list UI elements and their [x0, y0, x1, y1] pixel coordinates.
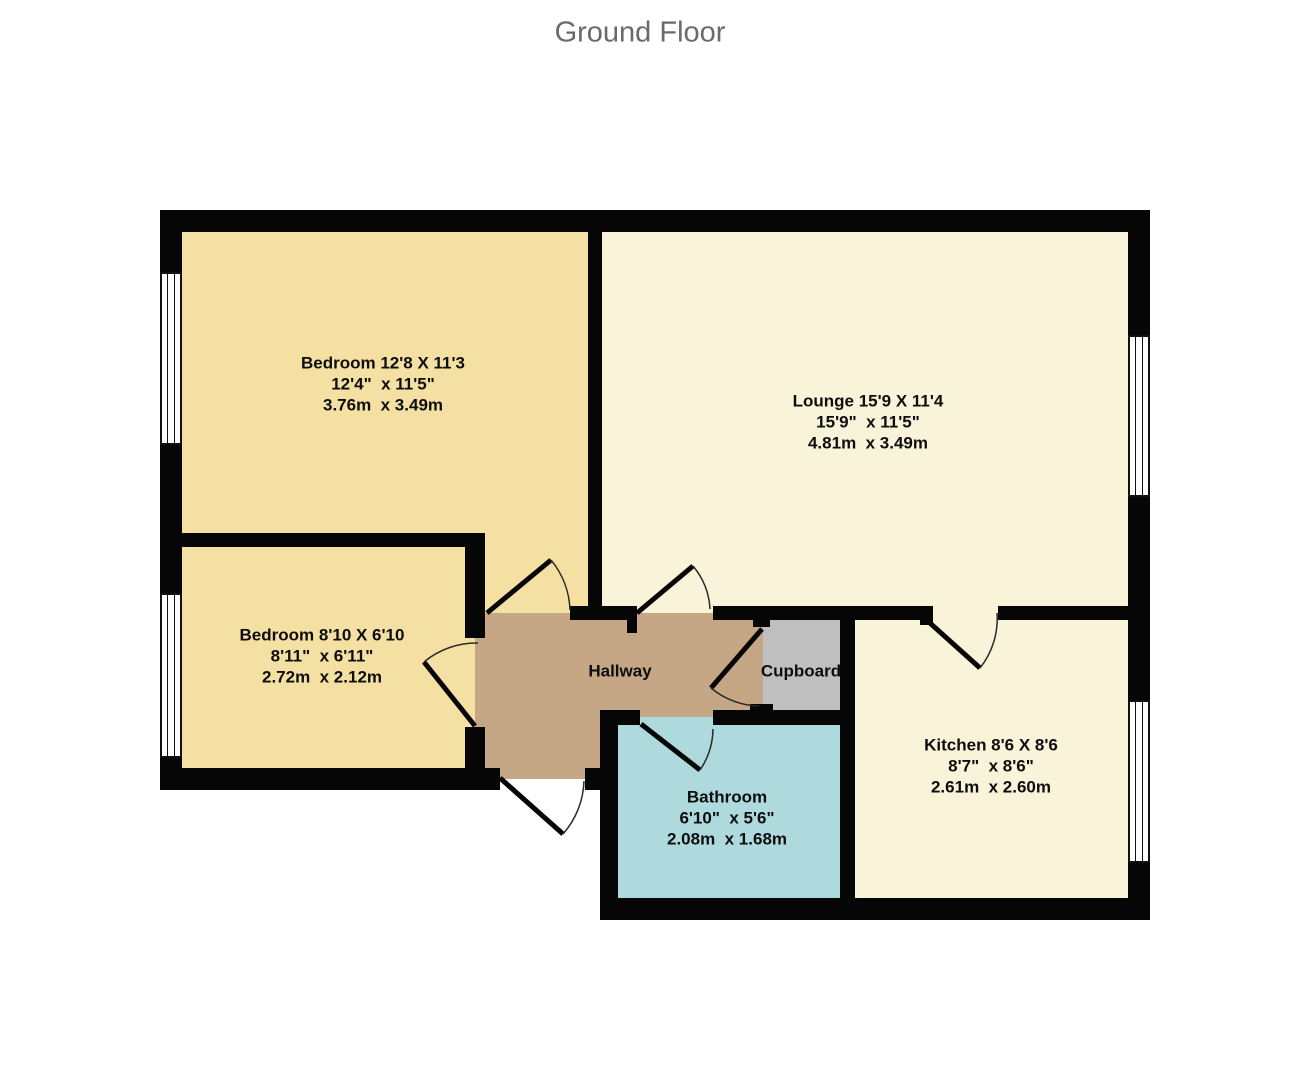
bathroom-door [641, 724, 713, 770]
lounge-window [1128, 335, 1150, 497]
kitchen-door [921, 613, 997, 668]
doors-layer [0, 0, 1308, 1080]
entry-door [500, 778, 584, 834]
kitchen-window [1128, 700, 1150, 863]
bedroom2-door [424, 643, 478, 726]
bedroom2-window [160, 593, 182, 758]
page-title: Ground Floor [555, 17, 726, 50]
lounge-door [637, 566, 710, 613]
bedroom1-window [160, 272, 182, 445]
cupboard-door [711, 629, 762, 706]
floor-plan-canvas: Ground Floor Bedroom 12'8 X 11'312'4" x … [0, 0, 1308, 1080]
bedroom1-door [487, 560, 570, 613]
